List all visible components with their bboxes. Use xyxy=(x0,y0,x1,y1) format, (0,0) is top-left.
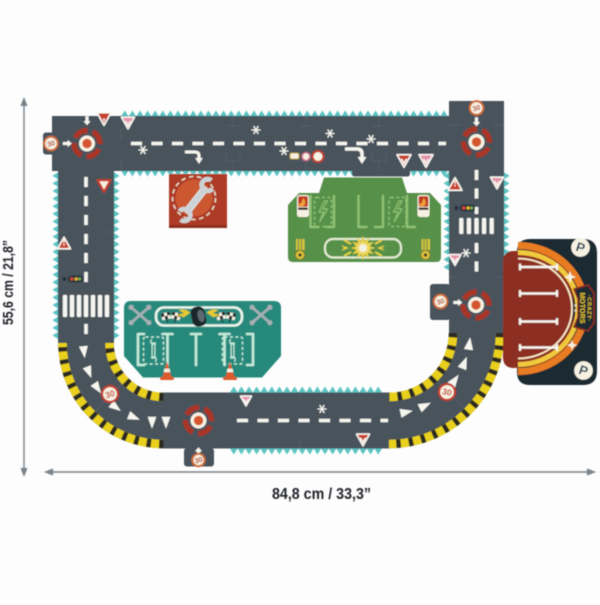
svg-text:·CRAZY·: ·CRAZY· xyxy=(585,295,591,321)
svg-text:84,8 cm / 33,3”: 84,8 cm / 33,3” xyxy=(272,486,371,503)
svg-text:★ ★: ★ ★ xyxy=(573,303,578,313)
svg-text:55,6 cm / 21,8”: 55,6 cm / 21,8” xyxy=(1,240,17,325)
